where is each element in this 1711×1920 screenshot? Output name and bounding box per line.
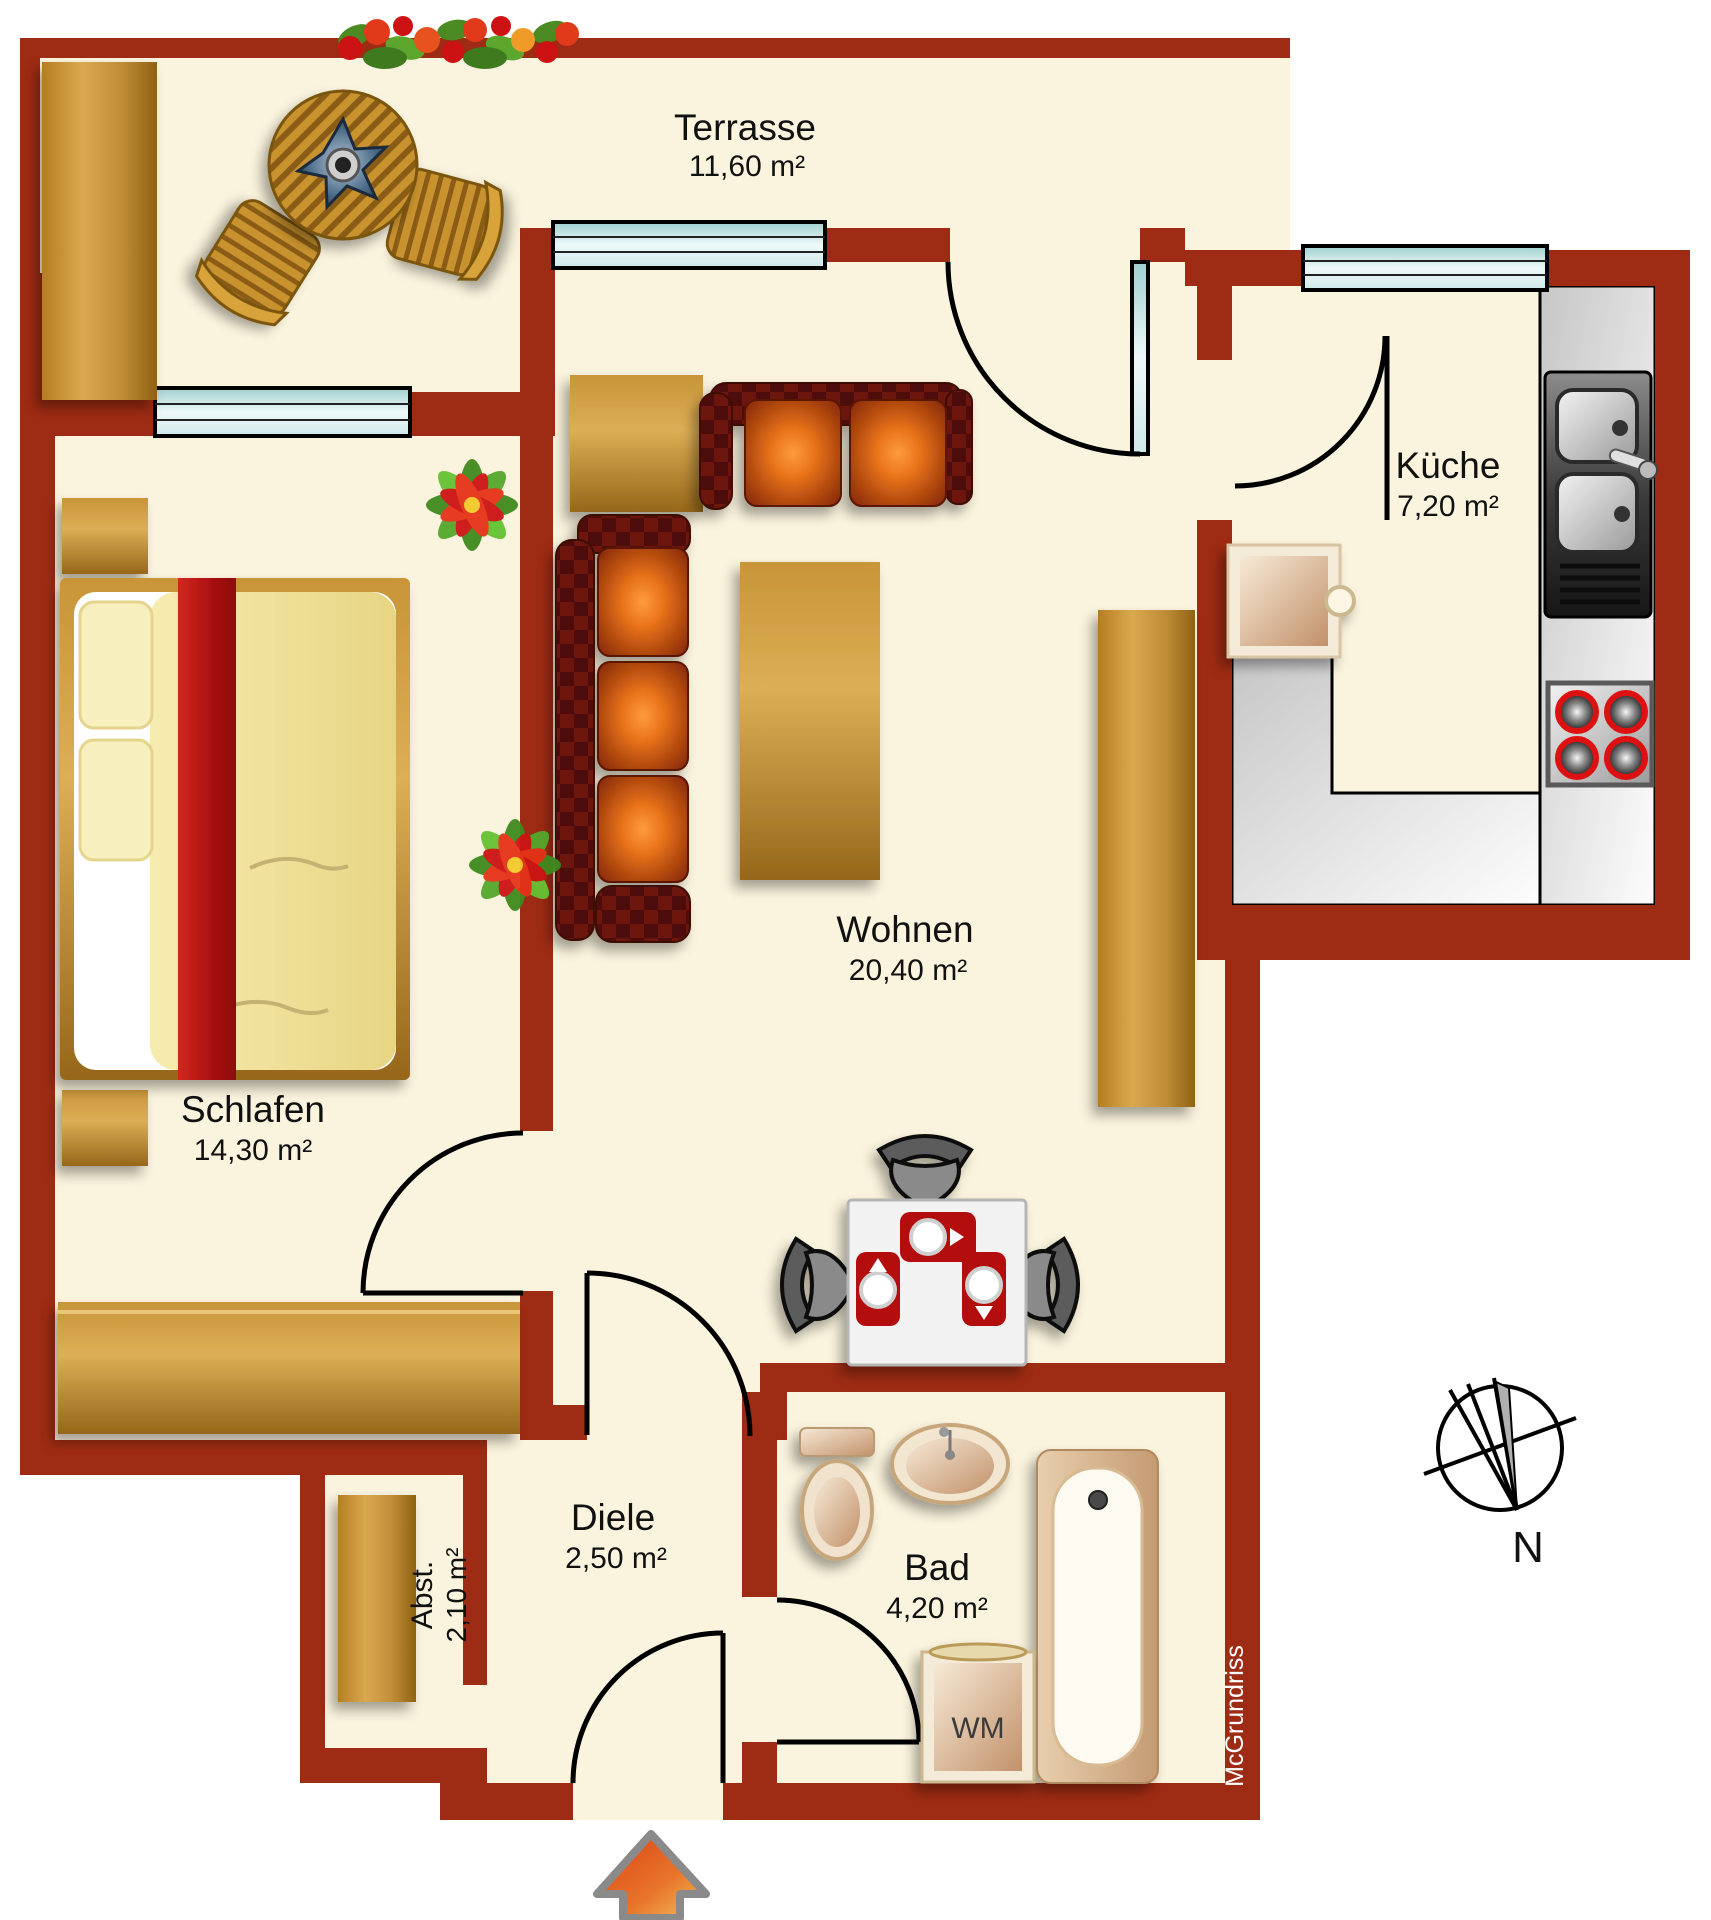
dining-table [848, 1200, 1026, 1365]
bathtub [1037, 1450, 1158, 1783]
room-label: Terrasse [674, 107, 816, 148]
stove [1548, 683, 1652, 785]
room-area: 4,20 m² [886, 1592, 988, 1625]
washing-machine: WM [922, 1644, 1034, 1782]
room-area: 2,50 m² [565, 1542, 667, 1575]
window-living [553, 222, 825, 268]
floorplan-page: WM Terrasse 11,60 m² Küche 7,20 m² Wohne… [0, 0, 1711, 1920]
terrace-bench [42, 62, 157, 400]
entrance-arrow-icon [597, 1834, 706, 1918]
room-area: 11,60 m² [689, 150, 805, 183]
terrace-table [269, 91, 417, 239]
compass-north-label: N [1512, 1523, 1544, 1572]
room-label: Küche [1396, 445, 1501, 486]
plant-icon [469, 819, 561, 911]
storage-shelf [338, 1495, 416, 1702]
cabinet [570, 375, 703, 512]
nightstand [62, 1090, 148, 1166]
room-label: Abst. [406, 1561, 439, 1629]
room-schlafen: Schlafen 14,30 m² [181, 1089, 325, 1167]
sideboard [1098, 610, 1195, 1107]
washing-machine-label: WM [951, 1712, 1004, 1745]
bed [60, 578, 410, 1080]
room-kueche: Küche 7,20 m² [1396, 445, 1501, 523]
bathroom-sink [892, 1425, 1008, 1503]
room-wohnen: Wohnen 20,40 m² [836, 909, 973, 987]
watermark-text: McGrundriss [1221, 1645, 1249, 1787]
compass: N [1424, 1378, 1576, 1572]
window-kitchen [1303, 246, 1547, 290]
room-diele: Diele 2,50 m² [565, 1497, 667, 1575]
plant-icon [426, 459, 518, 551]
window-bedroom [155, 388, 410, 436]
toilet [800, 1428, 874, 1559]
floorplan-drawing: WM Terrasse 11,60 m² Küche 7,20 m² Wohne… [0, 0, 1711, 1920]
kitchen-sink [1545, 372, 1657, 617]
room-area: 14,30 m² [194, 1134, 312, 1167]
sofa-3seat [556, 515, 690, 942]
room-label: Bad [904, 1547, 970, 1588]
coffee-table [740, 562, 880, 880]
room-label: Wohnen [836, 909, 973, 950]
room-area: 20,40 m² [849, 954, 967, 987]
room-label: Schlafen [181, 1089, 325, 1130]
room-label: Diele [571, 1497, 655, 1538]
room-terrasse: Terrasse 11,60 m² [674, 107, 816, 183]
fridge [1228, 545, 1354, 657]
room-area: 2,10 m² [441, 1548, 472, 1643]
room-area: 7,20 m² [1397, 490, 1499, 523]
nightstand [62, 498, 148, 574]
flower-bed [334, 16, 579, 69]
wardrobe [58, 1302, 520, 1434]
